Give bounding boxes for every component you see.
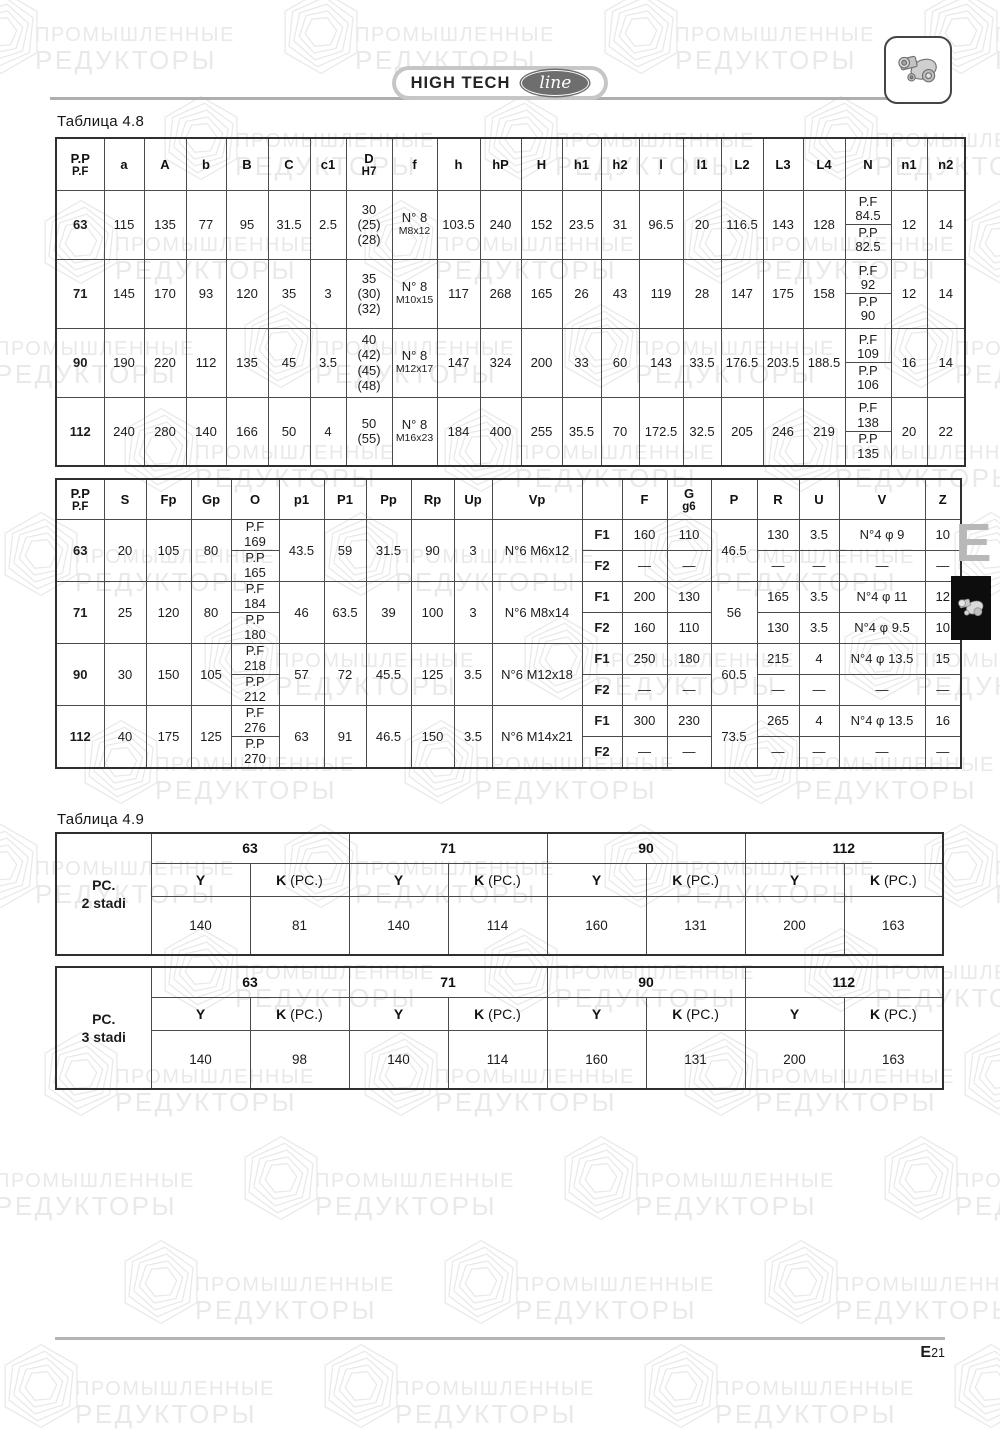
size-cell: 90: [56, 328, 104, 397]
dim-cell: 125: [191, 705, 231, 768]
dim-cell: 175: [763, 259, 803, 328]
table-4-8-flange-dimensions: P.PP.FSFpGpOp1P1PpRpUpVpFGg6PRUVZ6320105…: [55, 478, 944, 769]
line-word: line: [539, 73, 571, 93]
dim-cell: 166: [226, 397, 268, 466]
dim-cell: 4: [799, 643, 839, 674]
k-header: K (PC.): [646, 863, 745, 896]
value-cell: 81: [250, 896, 349, 955]
col-header: R: [757, 479, 799, 519]
watermark-text: ПРОМЫШЛЕННЫЕРЕДУКТОРЫ: [0, 1170, 195, 1222]
dim-cell: 117: [437, 259, 480, 328]
value-cell: 140: [151, 1030, 250, 1089]
dim-cell: 46.5: [711, 519, 757, 581]
dim-cell: —: [667, 550, 711, 581]
dim-cell: —: [799, 736, 839, 767]
thread-cell: N° 8M8x12: [392, 190, 437, 259]
f-variant-label: F1: [582, 643, 622, 674]
dim-cell: 220: [144, 328, 186, 397]
col-header: O: [231, 479, 279, 519]
dim-cell: 12: [891, 190, 927, 259]
watermark-text: ПРОМЫШЛЕННЫЕРЕДУКТОРЫ: [195, 1274, 395, 1326]
section-tab-letter: E: [951, 516, 996, 570]
size-cell: 63: [56, 519, 104, 581]
dim-cell: 20: [683, 190, 721, 259]
col-header: H: [521, 138, 562, 190]
hexagon-logo-icon: [875, 1132, 967, 1224]
value-cell: 98: [250, 1030, 349, 1089]
table-4-9-3-stadi: PC.3 stadi637190112YK (PC.)YK (PC.)YK (P…: [55, 966, 944, 1090]
col-header: P: [711, 479, 757, 519]
dim-cell: —: [622, 550, 667, 581]
hexagon-logo-icon: [755, 1236, 847, 1328]
col-header: DH7: [346, 138, 392, 190]
dim-cell: 200: [622, 581, 667, 612]
dim-cell: 22: [927, 397, 965, 466]
dim-cell: 31.5: [366, 519, 411, 581]
dim-cell: 60.5: [711, 643, 757, 705]
size-cell: 112: [56, 397, 104, 466]
table-4-8-main-dimensions: P.PP.FaAbBCc1DH7fhhPHh1h2ll1L2L3L4Nn1n26…: [55, 137, 944, 467]
size-cell: 63: [56, 190, 104, 259]
dim-cell: 43: [601, 259, 639, 328]
watermark-logo: ПРОМЫШЛЕННЫЕРЕДУКТОРЫ: [0, 1340, 275, 1432]
dim-cell: 400: [480, 397, 521, 466]
dim-cell: —: [799, 674, 839, 705]
value-cell: 114: [448, 1030, 547, 1089]
value-cell: 131: [646, 896, 745, 955]
size-header: 71: [349, 833, 547, 863]
dim-cell: 147: [437, 328, 480, 397]
dim-cell: 147: [721, 259, 763, 328]
dim-cell: 160: [622, 612, 667, 643]
dim-cell: 184: [437, 397, 480, 466]
dim-cell: 135: [226, 328, 268, 397]
dim-cell: 57: [279, 643, 324, 705]
hexagon-logo-icon: [945, 1340, 1000, 1432]
size-header: 112: [745, 967, 943, 997]
col-header: l: [639, 138, 683, 190]
col-header: N: [845, 138, 891, 190]
k-header: K (PC.): [646, 997, 745, 1030]
thread-cell: N° 8M16x23: [392, 397, 437, 466]
dim-cell: 105: [191, 643, 231, 705]
col-header: P1: [324, 479, 366, 519]
dim-cell: 324: [480, 328, 521, 397]
col-header: Pp: [366, 479, 411, 519]
watermark-text: ПРОМЫШЛЕННЫЕРЕДУКТОРЫ: [395, 1378, 595, 1430]
dim-cell: 40: [104, 705, 146, 768]
col-header: L2: [721, 138, 763, 190]
dim-cell: 15: [925, 643, 961, 674]
dim-cell: 268: [480, 259, 521, 328]
y-header: Y: [151, 863, 250, 896]
dim-cell: 23.5: [562, 190, 601, 259]
col-header: c1: [310, 138, 346, 190]
size-cell: 71: [56, 581, 104, 643]
value-cell: 163: [844, 896, 943, 955]
section-gearbox-tab: [951, 576, 991, 640]
col-header: S: [104, 479, 146, 519]
dim-cell: 16: [891, 328, 927, 397]
dim-cell: N°6 M8x14: [492, 581, 582, 643]
dim-cell: 116.5: [721, 190, 763, 259]
dim-cell: 50: [268, 397, 310, 466]
dim-cell: 110: [667, 612, 711, 643]
watermark-logo: ПРОМЫШЛЕННЫЕРЕДУКТОРЫ: [875, 1132, 1000, 1224]
dim-cell: 120: [226, 259, 268, 328]
watermark-text: ПРОМЫШЛЕННЫЕРЕДУКТОРЫ: [35, 24, 235, 76]
col-header: A: [144, 138, 186, 190]
dim-cell: N°4 φ 9: [839, 519, 925, 550]
watermark-logo: ПРОМЫШЛЕННЫЕРЕДУКТОРЫ: [435, 1236, 715, 1328]
dim-cell: 200: [521, 328, 562, 397]
dim-cell: 14: [927, 190, 965, 259]
dim-cell: —: [622, 674, 667, 705]
size-header: 90: [547, 967, 745, 997]
dim-cell: 3.5: [454, 705, 492, 768]
watermark-text: ПРОМЫШЛЕННЫЕРЕДУКТОРЫ: [955, 1170, 1000, 1222]
watermark-text: ПРОМЫШЛЕННЫЕРЕДУКТОРЫ: [635, 1170, 835, 1222]
value-cell: 140: [349, 896, 448, 955]
value-cell: 200: [745, 1030, 844, 1089]
dim-cell: 56: [711, 581, 757, 643]
dim-cell: 28: [683, 259, 721, 328]
watermark-text: ПРОМЫШЛЕННЫЕРЕДУКТОРЫ: [675, 24, 875, 76]
dim-cell: 280: [144, 397, 186, 466]
dim-cell: 246: [763, 397, 803, 466]
dim-cell: 12: [891, 259, 927, 328]
dim-cell: 203.5: [763, 328, 803, 397]
k-header: K (PC.): [250, 997, 349, 1030]
dim-cell: 20: [104, 519, 146, 581]
dim-cell: —: [925, 674, 961, 705]
dim-cell: 128: [803, 190, 845, 259]
hexagon-logo-icon: [0, 1340, 87, 1432]
col-header: hP: [480, 138, 521, 190]
y-header: Y: [745, 997, 844, 1030]
value-cell: 140: [349, 1030, 448, 1089]
dim-cell: 77: [186, 190, 226, 259]
f-variant-label: F1: [582, 519, 622, 550]
col-header: Up: [454, 479, 492, 519]
pf-pp-split-cell: P.F 84.5P.P 82.5: [845, 190, 891, 259]
dim-cell: 300: [622, 705, 667, 736]
watermark-text: ПРОМЫШЛЕННЫЕРЕДУКТОРЫ: [315, 1170, 515, 1222]
size-cell: 71: [56, 259, 104, 328]
dim-cell: 130: [667, 581, 711, 612]
dim-cell: 31: [601, 190, 639, 259]
dim-cell: 119: [639, 259, 683, 328]
col-header: n1: [891, 138, 927, 190]
hexagon-logo-icon: [635, 1340, 727, 1432]
pf-pp-split-cell: P.F 218P.P 212: [231, 643, 279, 705]
value-cell: 200: [745, 896, 844, 955]
dim-cell: 43.5: [279, 519, 324, 581]
dim-cell: 160: [622, 519, 667, 550]
dim-cell: 115: [104, 190, 144, 259]
dim-cell: 3.5: [799, 612, 839, 643]
dim-cell: 30: [104, 643, 146, 705]
col-header: P.PP.F: [56, 138, 104, 190]
page-number-value: 21: [931, 1346, 945, 1360]
hightech-logo-inner: HIGH TECH line: [396, 70, 604, 96]
dim-cell: 143: [763, 190, 803, 259]
size-cell: 90: [56, 643, 104, 705]
value-cell: 131: [646, 1030, 745, 1089]
dim-cell: 125: [411, 643, 454, 705]
k-header: K (PC.): [844, 863, 943, 896]
watermark-logo: ПРОМЫШЛЕННЫЕРЕДУКТОРЫ: [115, 1236, 395, 1328]
watermark-logo: ПРОМЫШЛЕННЫЕРЕДУКТОРЫ: [955, 1028, 1000, 1120]
hexagon-logo-icon: [595, 0, 687, 78]
dim-cell: 90: [411, 519, 454, 581]
col-header: B: [226, 138, 268, 190]
dim-cell: 180: [667, 643, 711, 674]
dim-cell: 26: [562, 259, 601, 328]
dim-cell: 93: [186, 259, 226, 328]
dim-cell: 190: [104, 328, 144, 397]
dim-cell: 70: [601, 397, 639, 466]
table-4-9-2-stadi: PC.2 stadi637190112YK (PC.)YK (PC.)YK (P…: [55, 832, 944, 956]
table49-caption: Таблица 4.9: [57, 811, 144, 828]
col-header: Vp: [492, 479, 582, 519]
dim-cell: 3.5: [799, 519, 839, 550]
col-header: l1: [683, 138, 721, 190]
dim-cell: 143: [639, 328, 683, 397]
catalog-page: ПРОМЫШЛЕННЫЕРЕДУКТОРЫПРОМЫШЛЕННЫЕРЕДУКТО…: [0, 0, 1000, 1414]
f-variant-label: F2: [582, 674, 622, 705]
dim-cell: 45: [268, 328, 310, 397]
col-header: f: [392, 138, 437, 190]
col-header: h2: [601, 138, 639, 190]
dim-cell: 80: [191, 581, 231, 643]
f-variant-label: F2: [582, 612, 622, 643]
col-header: Rp: [411, 479, 454, 519]
size-header: 112: [745, 833, 943, 863]
dim-cell: 20: [891, 397, 927, 466]
dim-cell: N°6 M6x12: [492, 519, 582, 581]
dim-cell: 265: [757, 705, 799, 736]
dim-cell: —: [757, 674, 799, 705]
watermark-text: ПРОМЫШЛЕННЫЕРЕДУКТОРЫ: [75, 1378, 275, 1430]
col-header: n2: [927, 138, 965, 190]
col-header: h: [437, 138, 480, 190]
y-header: Y: [547, 863, 646, 896]
watermark-logo: ПРОМЫШЛЕННЫЕРЕДУКТОРЫ: [595, 0, 875, 78]
hexagon-logo-icon: [315, 1340, 407, 1432]
dim-cell: —: [757, 736, 799, 767]
y-header: Y: [349, 863, 448, 896]
gearbox-dark-icon: [954, 591, 988, 625]
dim-cell: 140: [186, 397, 226, 466]
dim-cell: 150: [146, 643, 191, 705]
dim-cell: 152: [521, 190, 562, 259]
dim-cell: 205: [721, 397, 763, 466]
footer-rule: [55, 1337, 945, 1340]
dim-cell: 39: [366, 581, 411, 643]
dim-cell: 63: [279, 705, 324, 768]
dim-cell: 25: [104, 581, 146, 643]
dim-cell: —: [839, 674, 925, 705]
col-header: F: [622, 479, 667, 519]
f-variant-label: F1: [582, 581, 622, 612]
dim-cell: N°4 φ 13.5: [839, 705, 925, 736]
dim-cell: N°4 φ 11: [839, 581, 925, 612]
dim-cell: 100: [411, 581, 454, 643]
dim-cell: 31.5: [268, 190, 310, 259]
watermark-logo: ПРОМЫШЛЕННЫЕРЕДУКТОРЫ: [315, 1340, 595, 1432]
dim-cell: 16: [925, 705, 961, 736]
dim-cell: 63.5: [324, 581, 366, 643]
dim-cell: 250: [622, 643, 667, 674]
dim-cell: 32.5: [683, 397, 721, 466]
watermark-logo: ПРОМЫШЛЕННЫЕРЕДУКТОРЫ: [945, 1340, 1000, 1432]
col-header: Fp: [146, 479, 191, 519]
col-header: b: [186, 138, 226, 190]
dim-cell: 91: [324, 705, 366, 768]
dim-cell: 170: [144, 259, 186, 328]
dim-cell: N°4 φ 9.5: [839, 612, 925, 643]
hexagon-logo-icon: [435, 1236, 527, 1328]
dim-cell: 33: [562, 328, 601, 397]
dim-cell: 255: [521, 397, 562, 466]
watermark-logo: ПРОМЫШЛЕННЫЕРЕДУКТОРЫ: [235, 1132, 515, 1224]
dim-cell: 3: [454, 581, 492, 643]
row-label: PC.2 stadi: [56, 833, 151, 955]
thread-cell: N° 8M10x15: [392, 259, 437, 328]
gearbox-photo-icon: [884, 36, 952, 104]
col-header: a: [104, 138, 144, 190]
watermark-text: ПРОМЫШЛЕННЫЕРЕДУКТОРЫ: [995, 24, 1000, 76]
dim-cell: 240: [104, 397, 144, 466]
dim-cell: 59: [324, 519, 366, 581]
brand-text: HIGH TECH: [411, 74, 511, 93]
dim-cell: 3.5: [310, 328, 346, 397]
dim-cell: 112: [186, 328, 226, 397]
hexagon-logo-icon: [235, 1132, 327, 1224]
col-header: h1: [562, 138, 601, 190]
watermark-logo: ПРОМЫШЛЕННЫЕРЕДУКТОРЫ: [0, 1132, 195, 1224]
col-header: p1: [279, 479, 324, 519]
dim-cell: 2.5: [310, 190, 346, 259]
page-number-prefix: E: [920, 1344, 931, 1361]
watermark-logo: ПРОМЫШЛЕННЫЕРЕДУКТОРЫ: [555, 1132, 835, 1224]
watermark-logo: ПРОМЫШЛЕННЫЕРЕДУКТОРЫ: [755, 1236, 1000, 1328]
dim-cell: 45.5: [366, 643, 411, 705]
dim-cell: 172.5: [639, 397, 683, 466]
value-cell: 160: [547, 896, 646, 955]
dim-cell: 4: [310, 397, 346, 466]
col-header: P.PP.F: [56, 479, 104, 519]
pf-pp-split-cell: P.F 92P.P 90: [845, 259, 891, 328]
size-header: 90: [547, 833, 745, 863]
pf-pp-split-cell: P.F 109P.P 106: [845, 328, 891, 397]
dim-cell: —: [799, 550, 839, 581]
watermark-logo: ПРОМЫШЛЕННЫЕРЕДУКТОРЫ: [635, 1340, 915, 1432]
dim-cell: 120: [146, 581, 191, 643]
pf-pp-split-cell: P.F 276P.P 270: [231, 705, 279, 768]
dim-cell: 145: [104, 259, 144, 328]
col-header: V: [839, 479, 925, 519]
col-header: Gg6: [667, 479, 711, 519]
dim-cell: 14: [927, 259, 965, 328]
dim-cell: —: [622, 736, 667, 767]
dim-cell: 240: [480, 190, 521, 259]
dim-cell: 35: [268, 259, 310, 328]
bore-cell: 40 (42) (45) (48): [346, 328, 392, 397]
size-header: 63: [151, 833, 349, 863]
hightech-logo: HIGH TECH line: [392, 66, 608, 100]
dim-cell: 60: [601, 328, 639, 397]
dim-cell: 158: [803, 259, 845, 328]
value-cell: 140: [151, 896, 250, 955]
col-header: L4: [803, 138, 845, 190]
k-header: K (PC.): [844, 997, 943, 1030]
f-variant-label: F2: [582, 550, 622, 581]
dim-cell: 35.5: [562, 397, 601, 466]
col-header: L3: [763, 138, 803, 190]
dim-cell: 46: [279, 581, 324, 643]
bore-cell: 30 (25) (28): [346, 190, 392, 259]
dim-cell: 95: [226, 190, 268, 259]
dim-cell: —: [757, 550, 799, 581]
dim-cell: 135: [144, 190, 186, 259]
hexagon-logo-icon: [555, 1132, 647, 1224]
y-header: Y: [349, 997, 448, 1030]
k-header: K (PC.): [448, 863, 547, 896]
dim-cell: 188.5: [803, 328, 845, 397]
col-header: C: [268, 138, 310, 190]
dim-cell: 3: [310, 259, 346, 328]
size-cell: 112: [56, 705, 104, 768]
size-header: 63: [151, 967, 349, 997]
value-cell: 163: [844, 1030, 943, 1089]
k-header: K (PC.): [250, 863, 349, 896]
row-label: PC.3 stadi: [56, 967, 151, 1089]
line-badge: line: [521, 70, 589, 96]
dim-cell: 105: [146, 519, 191, 581]
dim-cell: 103.5: [437, 190, 480, 259]
dim-cell: —: [667, 674, 711, 705]
gearbox-icon: [892, 44, 944, 96]
dim-cell: —: [667, 736, 711, 767]
dim-cell: 165: [521, 259, 562, 328]
value-cell: 160: [547, 1030, 646, 1089]
pf-pp-split-cell: P.F 138P.P 135: [845, 397, 891, 466]
dim-cell: 80: [191, 519, 231, 581]
dim-cell: 4: [799, 705, 839, 736]
k-header: K (PC.): [448, 997, 547, 1030]
watermark-text: ПРОМЫШЛЕННЫЕРЕДУКТОРЫ: [515, 1274, 715, 1326]
dim-cell: 175: [146, 705, 191, 768]
f-variant-label: F1: [582, 705, 622, 736]
dim-cell: N°4 φ 13.5: [839, 643, 925, 674]
dim-cell: 130: [757, 519, 799, 550]
y-header: Y: [151, 997, 250, 1030]
size-header: 71: [349, 967, 547, 997]
bore-cell: 50 (55): [346, 397, 392, 466]
bore-cell: 35 (30) (32): [346, 259, 392, 328]
dim-cell: 165: [757, 581, 799, 612]
dim-cell: 46.5: [366, 705, 411, 768]
dim-cell: 215: [757, 643, 799, 674]
dim-cell: —: [925, 736, 961, 767]
pf-pp-split-cell: P.F 169P.P 165: [231, 519, 279, 581]
watermark-text: ПРОМЫШЛЕННЫЕРЕДУКТОРЫ: [995, 858, 1000, 910]
hexagon-logo-icon: [955, 1028, 1000, 1120]
dim-cell: —: [839, 550, 925, 581]
col-header: Gp: [191, 479, 231, 519]
